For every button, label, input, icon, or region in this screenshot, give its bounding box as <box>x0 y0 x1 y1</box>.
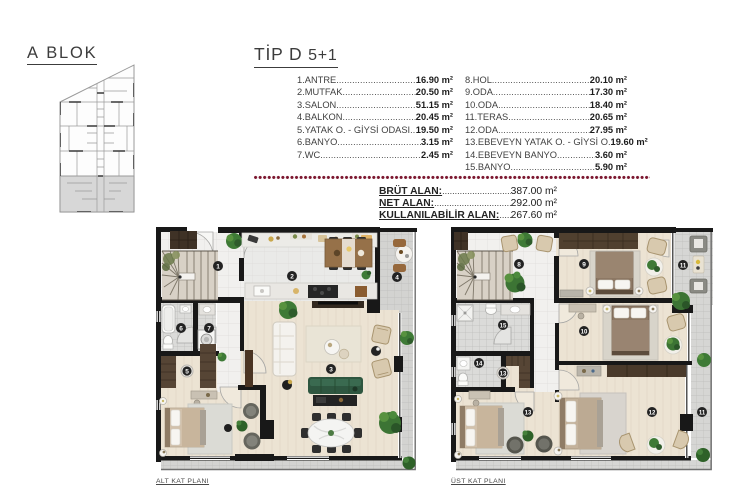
svg-text:11: 11 <box>680 263 687 269</box>
svg-text:5: 5 <box>185 368 189 375</box>
svg-text:8: 8 <box>517 261 521 268</box>
svg-text:12: 12 <box>649 410 656 416</box>
svg-text:15: 15 <box>500 323 507 329</box>
svg-text:1: 1 <box>216 263 220 270</box>
svg-text:4: 4 <box>395 274 399 281</box>
svg-text:13: 13 <box>525 410 532 416</box>
svg-text:11: 11 <box>699 410 706 416</box>
svg-text:10: 10 <box>581 329 588 335</box>
svg-text:9: 9 <box>582 261 586 268</box>
svg-text:13: 13 <box>500 371 507 377</box>
svg-text:7: 7 <box>207 325 211 332</box>
svg-text:2: 2 <box>290 273 294 280</box>
svg-text:3: 3 <box>329 366 333 373</box>
svg-text:14: 14 <box>476 361 483 367</box>
svg-text:6: 6 <box>179 325 183 332</box>
